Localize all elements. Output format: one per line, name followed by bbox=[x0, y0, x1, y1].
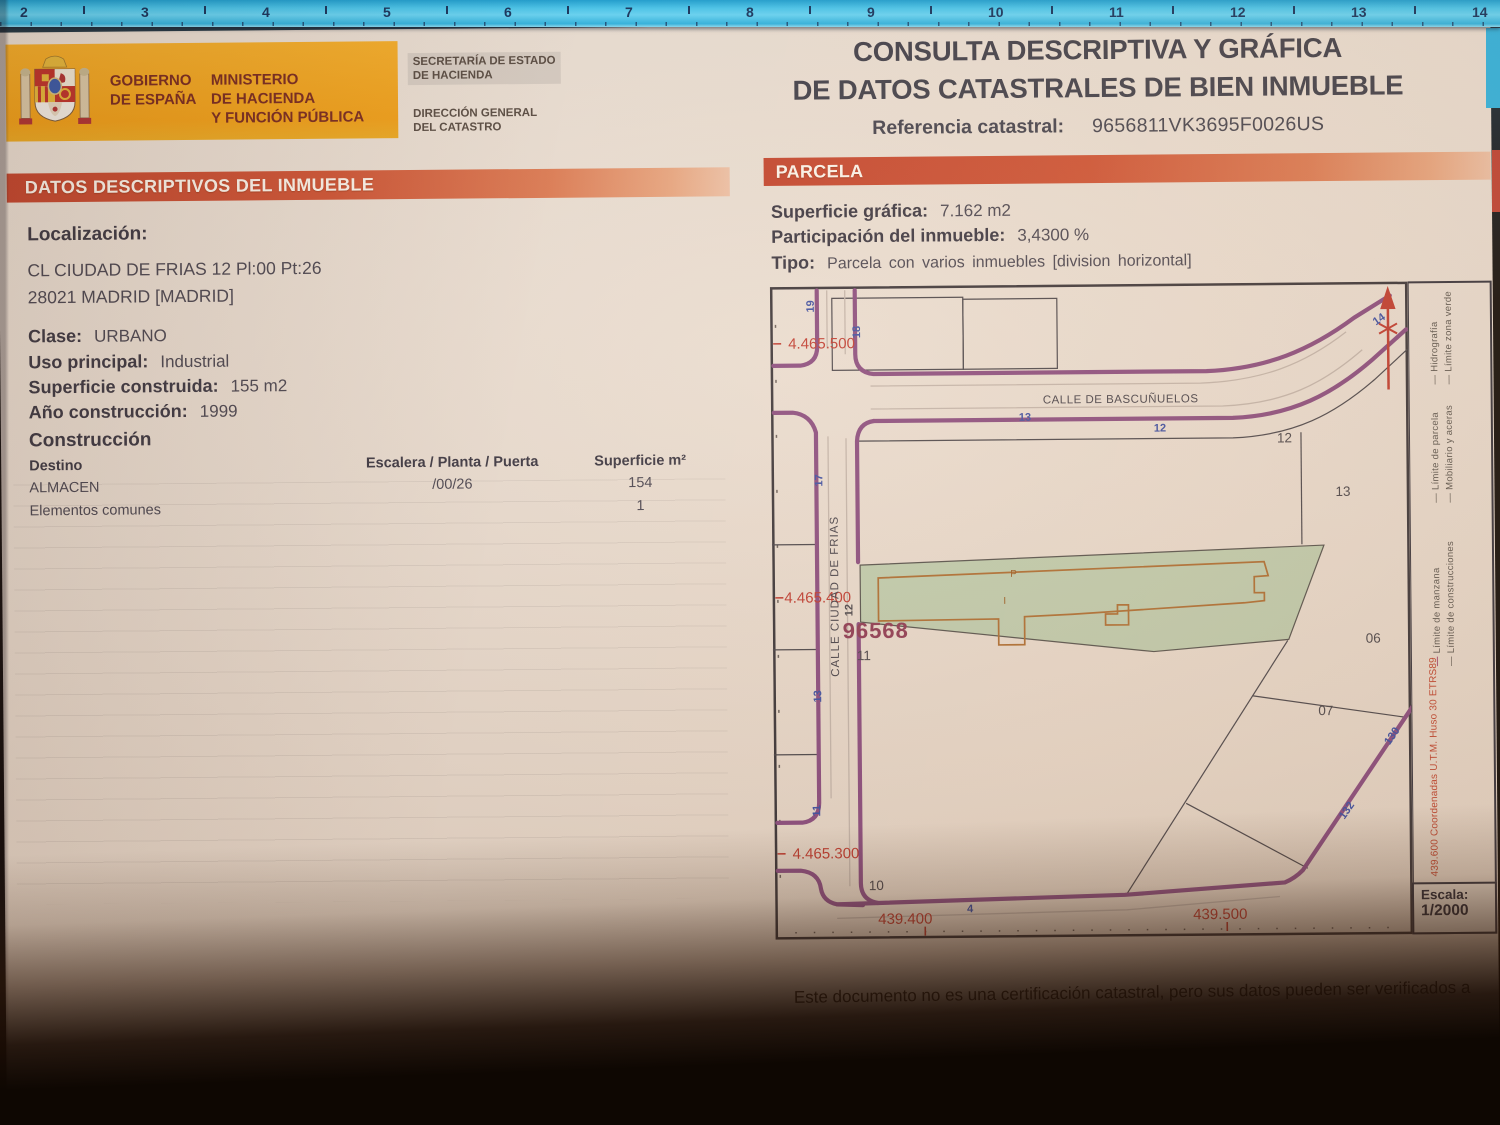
government-banner: GOBIERNO DE ESPAÑA MINISTERIO DE HACIEND… bbox=[6, 41, 399, 141]
section-datos-descriptivos: DATOS DESCRIPTIVOS DEL INMUEBLE bbox=[7, 167, 730, 202]
street-name-bascunuelos: CALLE DE BASCUÑUELOS bbox=[1043, 392, 1199, 406]
street-number: 12 bbox=[1154, 422, 1166, 434]
column-header-superficie: Superficie m² bbox=[575, 450, 705, 471]
ruler-number: 8 bbox=[746, 4, 754, 20]
table-cell: ALMACEN bbox=[29, 475, 329, 500]
parcel-numbers: 12 13 06 07 10 11 bbox=[855, 430, 1383, 894]
ruler-half-tick bbox=[446, 6, 448, 14]
field-tipo: Tipo: Parcela con varios inmuebles [divi… bbox=[771, 249, 1191, 274]
street-number: 13 bbox=[812, 690, 824, 702]
map-drawing: 4.465.500 4.465.400 4.465.300 439.400 43… bbox=[770, 281, 1414, 940]
ruler-number: 14 bbox=[1472, 4, 1488, 20]
secretaria-label: SECRETARÍA DE ESTADO DE HACIENDA bbox=[408, 52, 561, 85]
ruler-half-tick bbox=[325, 6, 327, 14]
street-number: 13 bbox=[1019, 412, 1031, 424]
legend-line-symbol: — bbox=[1430, 493, 1441, 503]
table-cell: 154 bbox=[575, 471, 705, 494]
building-mark: P bbox=[1010, 569, 1017, 580]
ruler-half-tick bbox=[204, 6, 206, 14]
field-superficie-construida: Superficie construida: 155 m2 bbox=[28, 375, 287, 398]
parcel-number: 07 bbox=[1318, 703, 1333, 718]
address-line-1: CL CIUDAD DE FRIAS 12 Pl:00 Pt:26 bbox=[27, 258, 321, 282]
construccion-title: Construcción bbox=[29, 429, 152, 452]
ruler-tick-marks bbox=[0, 22, 1500, 26]
legend-line-symbol: — bbox=[1429, 375, 1440, 385]
map-legend: — Hidrografía — Límite zona verde — Lími… bbox=[1408, 281, 1498, 935]
cadastral-map: 4.465.500 4.465.400 4.465.300 439.400 43… bbox=[770, 281, 1498, 940]
legend-item: — Hidrografía bbox=[1429, 291, 1441, 384]
referencia-label: Referencia catastral: bbox=[872, 115, 1064, 140]
ruler-half-tick bbox=[930, 6, 932, 14]
column-header-escalera: Escalera / Planta / Puerta bbox=[329, 452, 575, 474]
street-number: 12 bbox=[843, 604, 855, 616]
parcel-number: 06 bbox=[1366, 631, 1381, 646]
ruler-number: 3 bbox=[141, 4, 149, 20]
screen-edge-sliver bbox=[1486, 28, 1500, 108]
field-anio-construccion: Año construcción: 1999 bbox=[29, 401, 238, 424]
coord-label: 4.465.300 bbox=[793, 845, 860, 863]
legend-line-symbol: — bbox=[1443, 375, 1454, 385]
ruler-number: 7 bbox=[625, 4, 633, 20]
ruler-half-tick bbox=[809, 6, 811, 14]
street-number: 11 bbox=[811, 805, 823, 817]
ruler-number: 9 bbox=[867, 4, 875, 20]
ruler-number: 10 bbox=[988, 4, 1004, 20]
ruler: 234567891011121314 bbox=[0, 0, 1500, 27]
referencia-value: 9656811VK3695F0026US bbox=[1092, 113, 1324, 138]
parcel-number: 12 bbox=[1277, 430, 1292, 445]
table-cell: 1 bbox=[575, 494, 705, 517]
ruler-half-tick bbox=[688, 6, 690, 14]
parcel-number: 10 bbox=[869, 878, 884, 893]
legend-group-2: — Límite de parcela — Mobiliario y acera… bbox=[1430, 405, 1456, 503]
referencia-catastral: Referencia catastral: 9656811VK3695F0026… bbox=[788, 112, 1408, 140]
utm-coordinates-note: 439.600 Coordenadas U.T.M. Huso 30 ETRS8… bbox=[1428, 657, 1441, 877]
scale-label: Escala: bbox=[1421, 887, 1488, 903]
manzana-number: 96568 bbox=[843, 618, 909, 644]
parcel-number: 11 bbox=[857, 648, 871, 663]
ruler-half-tick bbox=[1172, 6, 1174, 14]
section-parcela: PARCELA bbox=[764, 152, 1491, 186]
parcel-number: 13 bbox=[1335, 484, 1350, 499]
ruler-number: 4 bbox=[262, 4, 270, 20]
ruler-number: 6 bbox=[504, 4, 512, 20]
faint-row-lines bbox=[13, 478, 729, 904]
bottom-margin-ticks bbox=[795, 927, 1400, 932]
street-number: 17 bbox=[813, 474, 825, 486]
photo-scene: 234567891011121314 bbox=[0, 0, 1500, 1125]
government-logo-text: GOBIERNO DE ESPAÑA bbox=[110, 71, 197, 110]
legend-item: — Límite de manzana bbox=[1431, 541, 1443, 666]
ruler-number: 2 bbox=[20, 4, 28, 20]
street-name-ciudad-de-frias: CALLE CIUDAD DE FRIAS bbox=[829, 516, 842, 677]
coord-label: 439.400 bbox=[878, 911, 932, 928]
ruler-half-tick bbox=[1414, 6, 1416, 14]
street-number: 18 bbox=[851, 326, 863, 338]
document-title: CONSULTA DESCRIPTIVA Y GRÁFICA DE DATOS … bbox=[787, 28, 1408, 109]
table-cell bbox=[329, 496, 575, 520]
legend-item: — Límite de parcela bbox=[1430, 405, 1442, 503]
legend-group-3: — Límite de manzana — Límite de construc… bbox=[1431, 541, 1457, 666]
ruler-number: 11 bbox=[1109, 4, 1124, 20]
street-number: 19 bbox=[805, 300, 817, 312]
map-scale: Escala: 1/2000 bbox=[1412, 882, 1497, 935]
street-number: 4 bbox=[967, 903, 974, 915]
field-superficie-grafica: Superficie gráfica: 7.162 m2 bbox=[771, 200, 1011, 223]
ruler-half-tick bbox=[567, 6, 569, 14]
legend-line-symbol: — bbox=[1446, 656, 1457, 666]
direccion-general-label: DIRECCIÓN GENERAL DEL CATASTRO bbox=[408, 104, 542, 137]
scale-value: 1/2000 bbox=[1421, 902, 1488, 921]
construccion-table: Destino Escalera / Planta / Puerta Super… bbox=[29, 450, 706, 522]
coord-label: 4.465.500 bbox=[788, 335, 855, 353]
coord-label: 439.500 bbox=[1193, 906, 1247, 923]
ministry-name: MINISTERIO DE HACIENDA Y FUNCIÓN PÚBLICA bbox=[211, 69, 365, 127]
field-clase: Clase: URBANO bbox=[28, 325, 167, 347]
ruler-half-tick bbox=[1293, 6, 1295, 14]
field-participacion: Participación del inmueble: 3,4300 % bbox=[771, 224, 1089, 248]
legend-group-1: — Hidrografía — Límite zona verde bbox=[1429, 291, 1455, 385]
building-mark: I bbox=[1003, 596, 1006, 607]
legend-line-symbol: — bbox=[1444, 493, 1455, 503]
localizacion-label: Localización: bbox=[27, 223, 148, 246]
legend-item: — Límite de construcciones bbox=[1445, 541, 1457, 666]
street-number: 14 bbox=[1371, 311, 1389, 328]
ruler-number: 5 bbox=[383, 4, 391, 20]
column-header-destino: Destino bbox=[29, 454, 329, 477]
address-line-2: 28021 MADRID [MADRID] bbox=[28, 286, 234, 309]
ruler-half-tick bbox=[1051, 6, 1053, 14]
ruler-half-tick bbox=[83, 6, 85, 14]
legend-item: — Límite zona verde bbox=[1443, 291, 1455, 384]
footer-disclaimer: Este documento no es una certificación c… bbox=[794, 977, 1500, 1007]
spain-coat-of-arms-icon bbox=[18, 50, 93, 137]
ruler-number: 12 bbox=[1230, 4, 1246, 20]
legend-item: — Mobiliario y aceras bbox=[1444, 405, 1456, 503]
red-edge-sliver bbox=[1492, 150, 1500, 212]
table-cell: /00/26 bbox=[329, 473, 575, 497]
ruler-number: 13 bbox=[1351, 4, 1367, 20]
document: GOBIERNO DE ESPAÑA MINISTERIO DE HACIEND… bbox=[0, 20, 1500, 1093]
table-cell: Elementos comunes bbox=[29, 498, 329, 523]
field-uso-principal: Uso principal: Industrial bbox=[28, 351, 229, 374]
